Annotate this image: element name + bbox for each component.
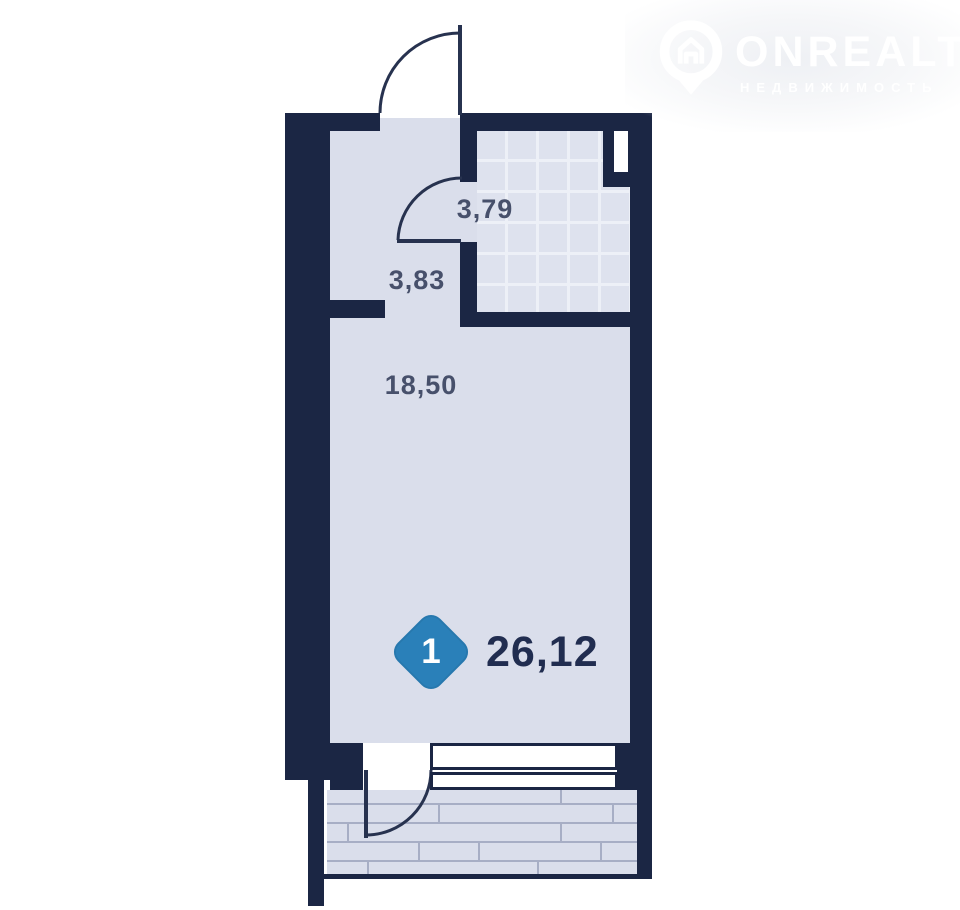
total-area-label: 26,12: [486, 629, 599, 675]
location-pin-house-icon: [655, 18, 727, 102]
plank-joint: [600, 843, 602, 862]
vent-shaft-window: [614, 131, 628, 172]
plank-joint: [612, 805, 614, 824]
window-sill-pane: [430, 772, 618, 790]
plank-joint: [418, 843, 420, 862]
area-label-bathroom: 3,79: [443, 194, 527, 225]
balcony-door-arc: [362, 766, 436, 840]
area-label-hallway: 3,83: [375, 265, 459, 296]
plank-joint: [478, 843, 480, 862]
bottom-wall-segment: [330, 743, 363, 790]
plank-joint: [347, 824, 349, 843]
bathroom-bottom-wall: [460, 312, 632, 327]
hallway-partition-stub: [285, 300, 385, 318]
bottom-left-wall-strip: [308, 780, 324, 906]
plank-joint: [560, 790, 562, 805]
balcony-bottom-line: [324, 874, 652, 879]
left-exterior-wall: [285, 113, 330, 780]
right-exterior-wall: [630, 113, 652, 743]
plank-joint: [560, 824, 562, 843]
entrance-door-arc: [375, 28, 465, 118]
plank-joint: [438, 805, 440, 824]
floor-plan-image: 3,79 3,83 18,50 1 26,12 ONREALT НЕДВИЖИМ…: [0, 0, 960, 910]
balcony-right-wall: [637, 790, 652, 877]
area-label-living-room: 18,50: [369, 370, 473, 401]
watermark-brand-name: ONREALT: [735, 28, 960, 77]
window-pier: [617, 743, 652, 790]
window-upper-pane: [430, 743, 618, 770]
unit-number: 1: [401, 630, 461, 674]
watermark-tagline: НЕДВИЖИМОСТЬ: [740, 80, 938, 95]
